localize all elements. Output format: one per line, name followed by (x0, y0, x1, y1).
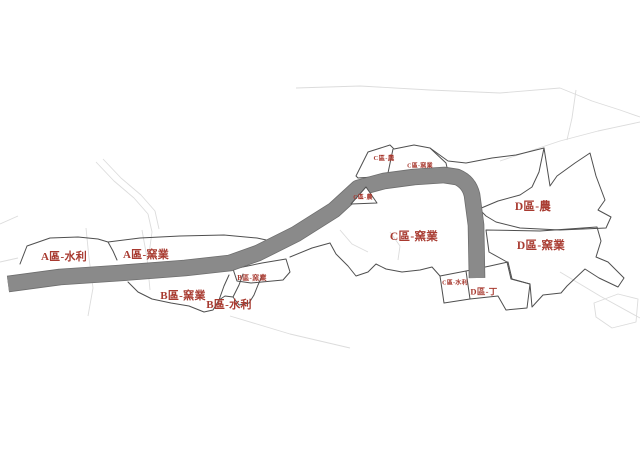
faint-boundary-line-10 (594, 294, 638, 328)
zone-d-kiln (486, 227, 624, 307)
zone-c-bottom-border (330, 243, 440, 276)
under-band-boundary (290, 243, 330, 257)
zoning-map-canvas: A區-水利A區-窯業B區-窯業B區-窯業B區-水利C區-農C區-窯業C區-農C區… (0, 0, 640, 452)
faint-boundary-line-4 (0, 216, 18, 224)
zone-c-water (440, 271, 470, 303)
zone-label-d-agri: D區-農 (515, 199, 552, 213)
zone-label-c-kiln-top: C區-窯業 (407, 162, 434, 170)
gray-corridor-band-edge (8, 175, 477, 284)
zone-label-b-kiln-small: B區-窯業 (237, 273, 267, 282)
faint-boundary-line-9 (567, 90, 576, 140)
zone-label-b-water: B區-水利 (206, 297, 252, 311)
faint-boundary-line-6 (296, 86, 560, 93)
zone-d-agri (479, 148, 611, 230)
zone-label-c-agri-bend: C區-農 (353, 193, 373, 201)
zone-label-d-kiln: D區-窯業 (517, 238, 565, 252)
zone-label-b-kiln: B區-窯業 (160, 288, 206, 302)
faint-boundary-line-11 (230, 316, 350, 348)
faint-boundary-line-5 (0, 258, 18, 262)
faint-boundary-line-1 (103, 159, 159, 229)
zone-label-d-ding: D區-丁 (470, 287, 497, 297)
zone-label-c-kiln: C區-窯業 (390, 229, 438, 243)
zoning-map-svg: A區-水利A區-窯業B區-窯業B區-窯業B區-水利C區-農C區-窯業C區-農C區… (0, 0, 640, 452)
faint-boundary-line-7 (560, 88, 640, 117)
zone-label-c-water: C區-水利 (442, 279, 468, 287)
zone-label-c-agri-top: C區-農 (373, 153, 394, 162)
upper-boundary-to-d (430, 148, 544, 163)
zone-label-a-water: A區-水利 (41, 249, 87, 263)
zone-label-a-kiln: A區-窯業 (123, 247, 170, 261)
faint-boundary-line-13 (340, 230, 368, 252)
